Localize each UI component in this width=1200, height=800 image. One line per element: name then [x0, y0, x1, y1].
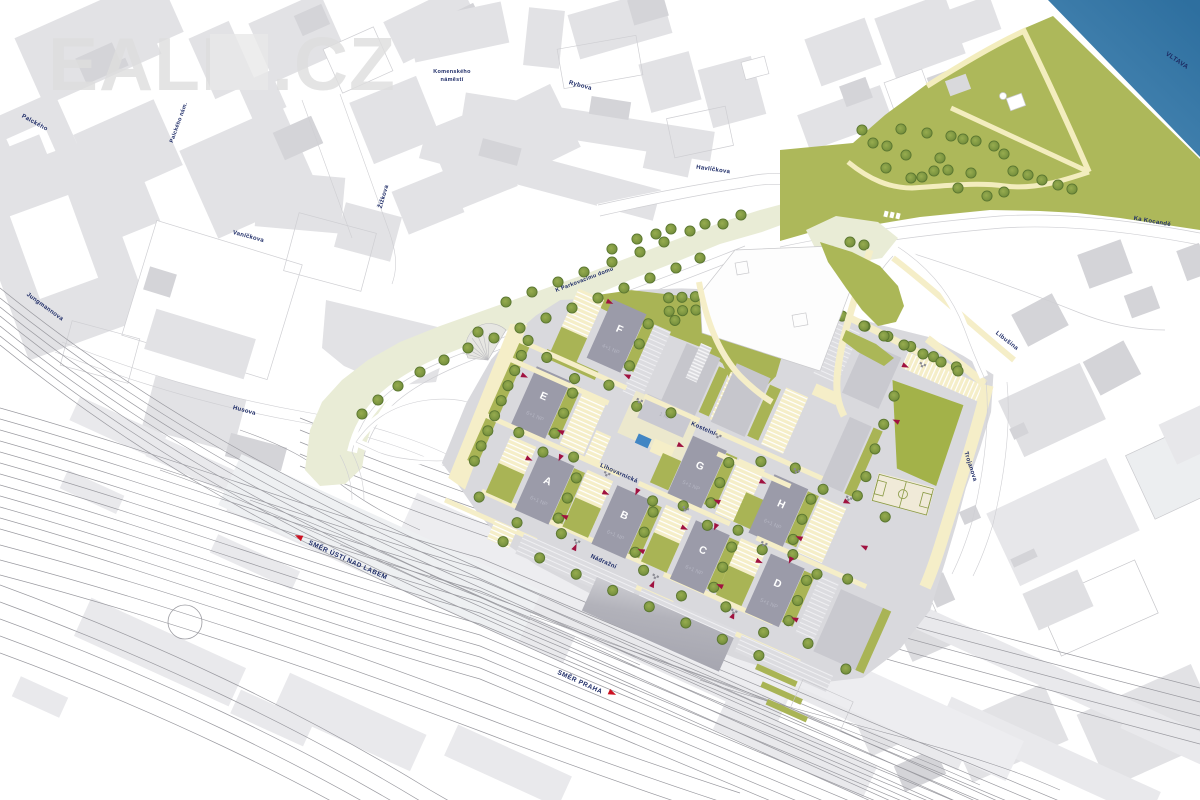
svg-text:Komenského: Komenského — [433, 69, 471, 75]
svg-text:.CZ: .CZ — [272, 22, 396, 106]
svg-text:náměstí: náměstí — [441, 77, 464, 83]
svg-text:EALI: EALI — [48, 22, 223, 106]
